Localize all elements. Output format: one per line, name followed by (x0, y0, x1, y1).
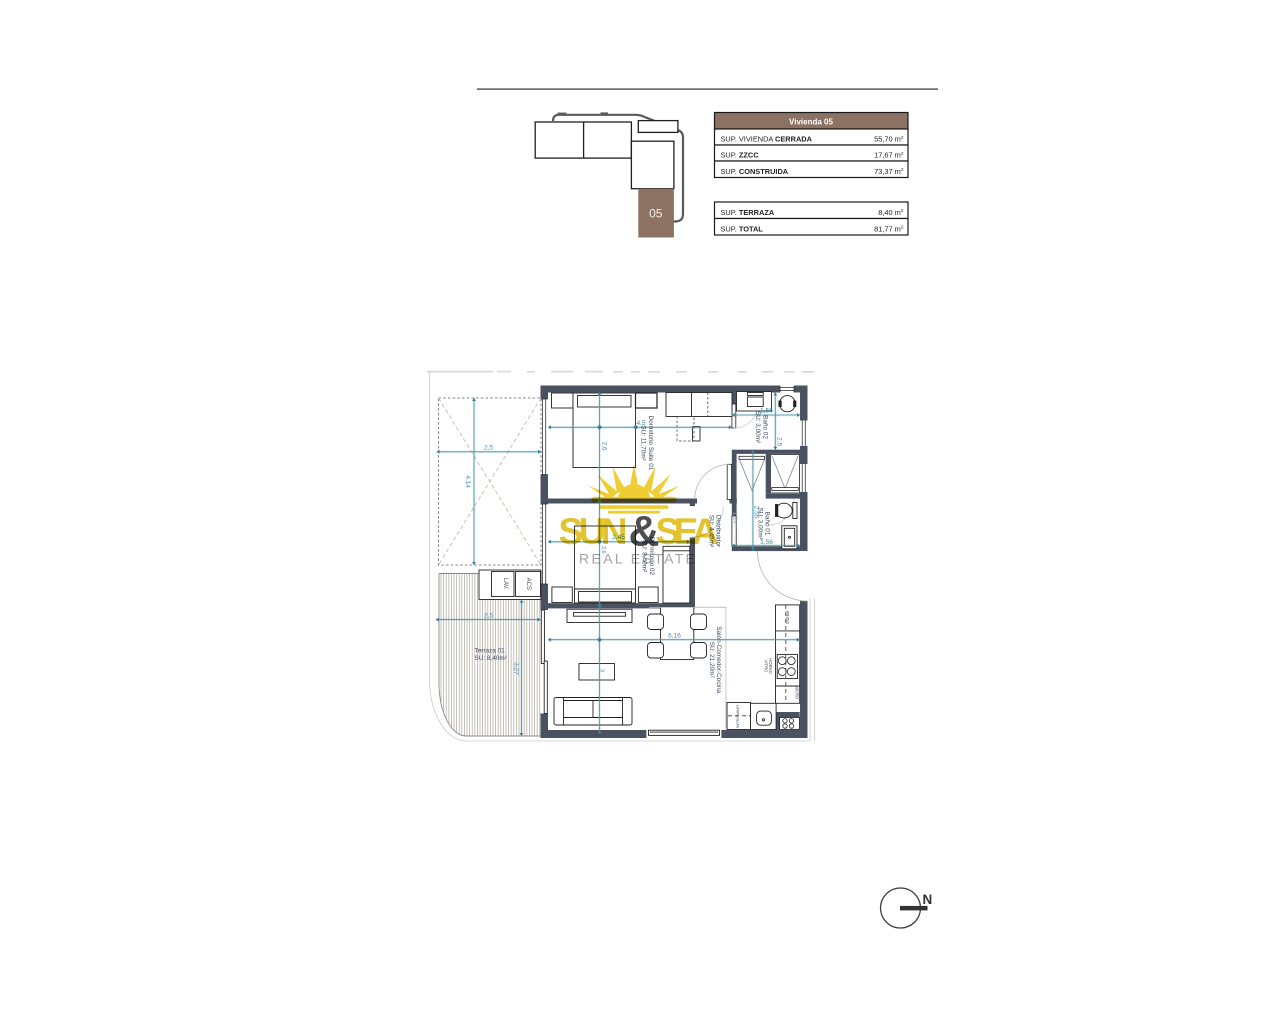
svg-text:SU: 21,20m²: SU: 21,20m² (708, 642, 715, 678)
svg-text:SEA: SEA (656, 511, 719, 552)
svg-text:2,5: 2,5 (776, 437, 783, 446)
svg-text:SUP. TERRAZA: SUP. TERRAZA (721, 208, 775, 217)
svg-text:LAVAVAJILLAS: LAVAVAJILLAS (736, 705, 740, 729)
svg-text:SU: 11,70m²: SU: 11,70m² (640, 425, 647, 460)
svg-text:81,77 m2: 81,77 m2 (874, 224, 904, 233)
svg-text:SU: 3,00m²: SU: 3,00m² (757, 507, 764, 539)
svg-text:Baño 01: Baño 01 (764, 512, 771, 536)
svg-text:3: 3 (599, 669, 605, 672)
svg-text:Vivienda 05: Vivienda 05 (789, 118, 833, 127)
svg-text:SUP. TOTAL: SUP. TOTAL (721, 224, 764, 233)
svg-text:2,6: 2,6 (601, 441, 608, 450)
svg-text:Dormitorio Suite 01: Dormitorio Suite 01 (647, 416, 654, 471)
svg-text:VITRO: VITRO (763, 660, 768, 674)
svg-text:SU: 3,00m²: SU: 3,00m² (754, 411, 761, 443)
svg-text:MICRO: MICRO (794, 685, 799, 700)
svg-text:HORNO: HORNO (768, 658, 773, 674)
svg-text:REAL ESTATE: REAL ESTATE (579, 551, 700, 567)
svg-text:17,67 m2: 17,67 m2 (874, 151, 904, 160)
svg-text:Terraza 01: Terraza 01 (475, 647, 506, 654)
svg-text:6,16: 6,16 (668, 632, 681, 639)
svg-text:3,27: 3,27 (513, 662, 520, 675)
svg-text:Salón-Comedor-Cocina: Salón-Comedor-Cocina (715, 626, 722, 693)
svg-text:SUP. VIVIENDA CERRADA: SUP. VIVIENDA CERRADA (721, 135, 813, 144)
svg-text:55,70 m2: 55,70 m2 (874, 135, 904, 144)
svg-text:8,40 m2: 8,40 m2 (878, 208, 904, 217)
svg-text:2,5: 2,5 (484, 445, 493, 452)
svg-text:1,84: 1,84 (731, 511, 738, 524)
svg-text:73,37 m2: 73,37 m2 (874, 167, 904, 176)
svg-text:FRIGO: FRIGO (785, 611, 790, 625)
svg-text:4,14: 4,14 (464, 475, 471, 488)
svg-text:LAV.: LAV. (502, 578, 508, 590)
svg-text:SUP. ZZCC: SUP. ZZCC (721, 151, 760, 160)
svg-text:1,56: 1,56 (760, 539, 773, 546)
svg-text:SU: 8,40m²: SU: 8,40m² (475, 655, 507, 662)
svg-text:N: N (923, 892, 933, 907)
svg-text:Baño 02: Baño 02 (761, 415, 768, 439)
svg-text:05: 05 (649, 207, 663, 221)
svg-text:SUP. CONSTRUIDA: SUP. CONSTRUIDA (721, 167, 789, 176)
svg-text:ACS: ACS (525, 578, 531, 590)
svg-text:2,5: 2,5 (484, 612, 493, 619)
svg-text:SUN: SUN (559, 511, 628, 552)
